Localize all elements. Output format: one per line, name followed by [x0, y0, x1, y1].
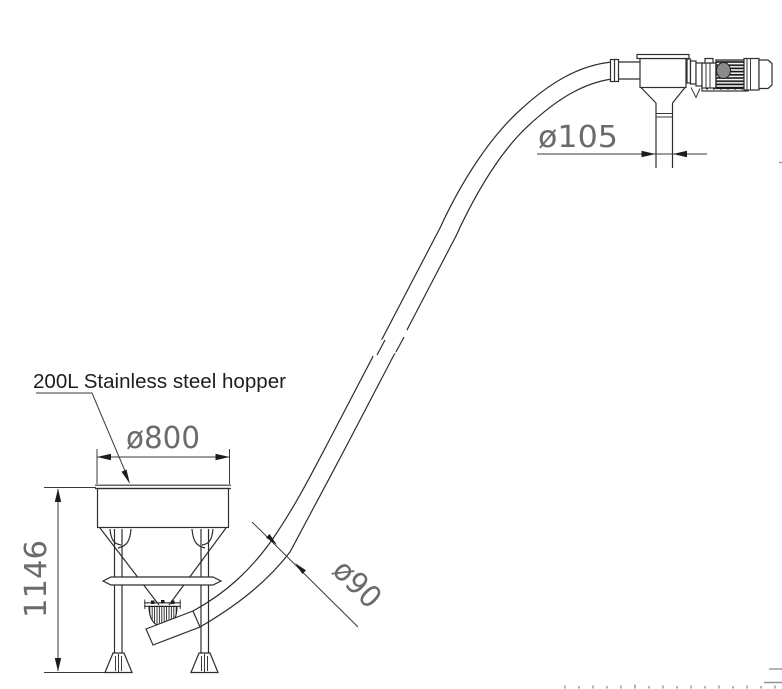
motor-gearbox: [702, 59, 716, 89]
leg-cross-brace: [103, 577, 221, 585]
conveyor-drawing: ø800 1146 ø105 ø90 200L Stainless steel …: [0, 0, 782, 689]
motor-fan-cowl: [744, 59, 772, 91]
hopper-body: [95, 485, 231, 527]
discharge-housing: [640, 59, 686, 88]
discharge-diameter-value: ø105: [538, 120, 618, 155]
hopper-label: 200L Stainless steel hopper: [33, 370, 286, 393]
technical-drawing-page: ø800 1146 ø105 ø90 200L Stainless steel …: [0, 0, 782, 689]
motor-adapter-plate: [691, 61, 697, 84]
hopper-diameter-value: ø800: [126, 421, 200, 456]
tube-coupling: [611, 60, 619, 82]
discharge-top-flange: [637, 55, 689, 59]
hopper-height-value: 1146: [19, 540, 54, 618]
motor-body: [716, 60, 744, 89]
motor-adapter-ring: [696, 63, 702, 86]
